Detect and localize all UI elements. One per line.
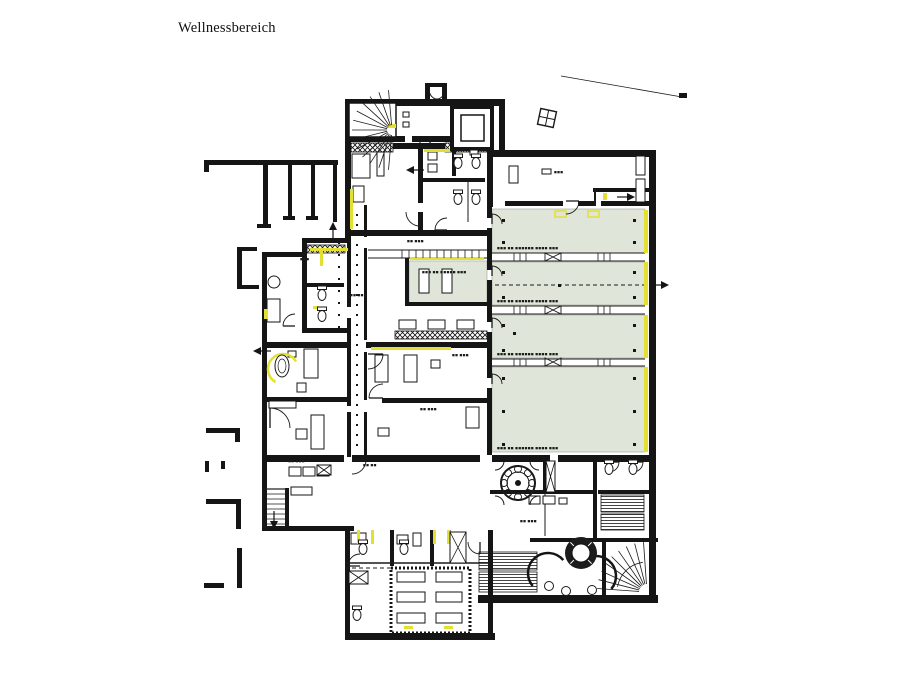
marker-dot — [633, 443, 636, 446]
wall-segment — [578, 201, 596, 206]
fixture-rect — [399, 320, 416, 329]
marker-dot — [558, 284, 561, 287]
wc-tank — [629, 460, 638, 464]
wall-segment — [221, 461, 225, 469]
wall-segment — [405, 302, 489, 306]
yellow-highlight — [310, 248, 348, 251]
marker-dot — [513, 332, 516, 335]
fixture-rect — [413, 533, 421, 546]
valve-icon — [553, 253, 561, 261]
wall-segment — [302, 238, 350, 243]
illegible-label: ■■ ■■■ — [407, 239, 424, 243]
fixture-rect — [352, 154, 370, 178]
guide-dot — [338, 254, 340, 256]
wc-icon — [318, 311, 326, 322]
illegible-label: ■■ ■■■ — [452, 353, 469, 357]
door-swing-arc — [283, 314, 295, 326]
wc-tank — [454, 190, 463, 194]
door-swing-arc — [435, 218, 447, 230]
illegible-label: ■■ ■■■ — [420, 407, 437, 411]
door-swing-arc — [406, 212, 420, 226]
yellow-highlight — [350, 189, 353, 229]
guide-dot — [356, 314, 358, 316]
illegible-label: ■■ ■■■ — [350, 293, 367, 297]
guide-dot — [356, 304, 358, 306]
wall-segment — [364, 205, 367, 237]
fixture-rect — [303, 467, 315, 476]
yellow-highlight — [404, 626, 413, 629]
circle-feature — [562, 587, 571, 596]
guide-dot — [338, 242, 340, 244]
wc-icon — [318, 290, 326, 301]
marker-dot — [502, 241, 505, 244]
guide-dot — [338, 314, 340, 316]
wall-segment — [236, 499, 241, 529]
illegible-label: ■■ ■■■ — [288, 459, 305, 463]
wall-segment — [333, 160, 337, 222]
wall-segment — [492, 455, 550, 462]
wc-tank — [400, 540, 409, 544]
fixture-rect — [304, 349, 318, 378]
fixture-rect — [297, 383, 306, 392]
marker-dot — [633, 324, 636, 327]
wall-segment — [262, 342, 350, 348]
wall-segment — [206, 428, 239, 433]
circle-feature — [588, 586, 597, 595]
fixture-rect — [466, 407, 479, 428]
petal-circle — [505, 470, 512, 477]
wall-segment — [306, 216, 318, 220]
wc-icon — [400, 544, 408, 555]
wc-icon — [353, 610, 361, 621]
wall-segment — [499, 99, 505, 157]
survey-mark-icon — [538, 109, 557, 128]
guide-dot — [356, 344, 358, 346]
fixture-rect — [397, 592, 425, 602]
wall-segment — [364, 352, 367, 400]
fixture-rect — [559, 498, 567, 504]
guide-dot — [356, 354, 358, 356]
valve-icon — [545, 306, 553, 314]
fixture-rect — [461, 115, 484, 141]
marker-dot — [633, 219, 636, 222]
wall-segment — [237, 285, 259, 289]
guide-dot — [356, 324, 358, 326]
wall-segment — [283, 216, 295, 220]
fixture-rect — [636, 179, 645, 202]
illegible-label: ■■■ ■■ ■■■■■■ ■■■■ ■■■ — [497, 352, 558, 356]
wc-icon — [472, 194, 480, 205]
wc-icon — [454, 158, 462, 169]
door-swing-arc — [270, 408, 290, 428]
guide-dot — [356, 434, 358, 436]
wc-tank — [605, 460, 614, 464]
wall-segment — [205, 461, 209, 472]
wall-segment — [352, 455, 480, 462]
stair-tread — [644, 542, 647, 584]
direction-arrow-icon — [661, 281, 669, 289]
guide-dot — [356, 384, 358, 386]
wall-segment — [649, 150, 656, 603]
marker-dot — [633, 377, 636, 380]
marker-dot — [502, 271, 505, 274]
guide-dot — [356, 224, 358, 226]
corner-arc — [495, 461, 504, 470]
wall-segment — [405, 258, 409, 304]
direction-arrow-icon — [627, 193, 635, 201]
valve-icon — [553, 306, 561, 314]
fixture-rect — [403, 122, 409, 127]
door-swing-arc — [468, 542, 480, 554]
fixture-rect — [436, 613, 462, 623]
wall-segment — [364, 412, 367, 457]
corner-arc — [495, 496, 504, 505]
guide-dot — [356, 404, 358, 406]
fixture-rect — [375, 355, 388, 382]
yellow-highlight — [603, 193, 607, 200]
guide-dot — [356, 364, 358, 366]
petal-circle — [524, 470, 531, 477]
wall-segment — [237, 247, 242, 289]
wc-tank — [359, 540, 368, 544]
yellow-highlight — [371, 347, 451, 350]
fixture-rect — [397, 572, 425, 582]
wall-segment — [393, 143, 422, 149]
corner-arc — [530, 461, 539, 470]
wall-segment — [204, 160, 209, 172]
yellow-highlight — [644, 367, 648, 452]
wall-segment — [311, 160, 315, 218]
fixture-rect — [378, 428, 389, 436]
slatted-bench — [601, 495, 644, 512]
marker-dot — [633, 241, 636, 244]
wall-segment — [302, 328, 350, 333]
tub-ellipse — [275, 355, 289, 377]
wall-segment — [418, 143, 423, 203]
floor-plan-page: Wellnessbereich ■■■ ■■ ■■■■■■ ■■■■ ■■■■■… — [0, 0, 900, 675]
wall-segment — [382, 398, 490, 403]
wall-segment — [347, 318, 351, 406]
yellow-highlight — [264, 309, 268, 319]
guide-dot — [338, 326, 340, 328]
wc-tank — [454, 154, 463, 158]
fixture-rect — [457, 320, 474, 329]
wall-segment — [345, 530, 350, 640]
fixture-rect — [269, 401, 296, 408]
yellow-highlight — [444, 626, 453, 629]
guide-dot — [356, 284, 358, 286]
fixture-rect — [509, 166, 518, 183]
guide-dot — [356, 414, 358, 416]
wall-segment — [206, 499, 241, 504]
illegible-label: ■■■ — [600, 489, 609, 493]
fixture-rect — [349, 103, 396, 137]
fixture-rect — [403, 112, 409, 117]
wall-segment — [257, 224, 271, 228]
floor-plan-drawing: ■■■ ■■ ■■■■■■ ■■■■ ■■■■■■ ■■ ■■■■■■ ■■■■… — [0, 0, 900, 675]
wc-tank — [472, 154, 481, 158]
wc-tank — [472, 190, 481, 194]
wall-segment — [530, 538, 658, 542]
circle-feature — [545, 582, 554, 591]
wc-tank — [318, 307, 327, 311]
fixture-rect — [267, 299, 280, 322]
wall-segment — [204, 583, 224, 588]
wc-tank — [353, 606, 362, 610]
fixture-rect — [311, 415, 324, 449]
guide-dot — [356, 394, 358, 396]
marker-dot — [633, 410, 636, 413]
fixture-rect — [404, 355, 417, 382]
guide-dot — [338, 302, 340, 304]
marker-dot — [633, 271, 636, 274]
green-room — [492, 367, 645, 452]
guide-dot — [356, 264, 358, 266]
wall-segment — [593, 455, 597, 540]
marker-dot — [502, 324, 505, 327]
guide-dot — [356, 424, 358, 426]
fixture-rect — [436, 592, 462, 602]
yellow-highlight — [644, 210, 648, 253]
wall-segment — [505, 201, 563, 206]
tub-ellipse — [278, 359, 286, 373]
wall-segment — [390, 530, 394, 566]
wall-segment — [487, 228, 492, 270]
guide-dot — [356, 244, 358, 246]
yellow-highlight — [320, 251, 323, 266]
yellow-highlight — [433, 530, 436, 544]
partition-line — [561, 76, 682, 97]
guide-dot — [356, 234, 358, 236]
yellow-highlight — [644, 315, 648, 358]
wall-segment — [263, 160, 268, 226]
marker-dot — [502, 219, 505, 222]
marker-dot — [502, 410, 505, 413]
fixture-rect — [296, 429, 307, 439]
wall-segment — [204, 160, 338, 165]
fixture-rect — [679, 93, 687, 98]
yellow-highlight — [410, 257, 484, 260]
illegible-label: ■■■ ■■ ■■■■■■ ■■■■ ■■■ — [497, 299, 558, 303]
guide-dot — [356, 254, 358, 256]
wc-icon — [359, 544, 367, 555]
fixture-rect — [428, 152, 437, 160]
wc-tank — [318, 286, 327, 290]
wall-segment — [237, 247, 257, 251]
fixture-rect — [291, 487, 312, 495]
door-swing-arc — [369, 384, 383, 398]
wall-segment — [237, 548, 242, 588]
marker-dot — [633, 296, 636, 299]
fixture-rect — [289, 467, 301, 476]
wall-segment — [423, 143, 445, 149]
fixture-rect — [428, 320, 445, 329]
yellow-highlight — [424, 149, 450, 152]
wall-segment — [487, 207, 492, 218]
wall-segment — [490, 150, 656, 157]
wall-segment — [487, 332, 492, 378]
fixture-rect — [353, 186, 364, 202]
illegible-label: ■■■ ■■ ■■■■■ ■■■ — [422, 270, 467, 274]
slatted-bench — [601, 514, 644, 530]
guide-dot — [338, 278, 340, 280]
wc-icon — [472, 158, 480, 169]
wall-segment — [420, 230, 490, 236]
circle-dot — [515, 480, 521, 486]
direction-arrow-icon — [253, 347, 261, 355]
guide-dot — [356, 374, 358, 376]
illegible-label: ■■ ■■ — [363, 463, 377, 467]
direction-arrow-icon — [329, 222, 337, 230]
valve-icon — [545, 253, 553, 261]
wall-segment — [487, 280, 492, 322]
yellow-highlight — [388, 124, 396, 128]
illegible-label: ■■■ ■■ ■■■■■■ ■■■■ ■■■ — [497, 446, 558, 450]
guide-dot — [338, 290, 340, 292]
wall-segment — [488, 530, 493, 637]
wc-icon — [454, 194, 462, 205]
fixture-rect — [397, 613, 425, 623]
illegible-label: ■■■ — [554, 170, 563, 174]
wall-segment — [235, 428, 240, 442]
guide-dot — [356, 334, 358, 336]
yellow-arc — [268, 354, 296, 382]
marker-dot — [633, 349, 636, 352]
wc-icon — [629, 464, 637, 475]
circle-feature — [268, 276, 280, 288]
fixture-rect — [543, 496, 555, 504]
wall-segment — [347, 412, 351, 457]
whirlpool-inner — [572, 544, 590, 562]
fixture-rect — [428, 164, 437, 172]
wall-segment — [288, 160, 292, 218]
wall-segment — [423, 178, 485, 182]
guide-dot — [338, 266, 340, 268]
yellow-highlight — [644, 262, 648, 305]
guide-dot — [356, 214, 358, 216]
illegible-label: ■■■ — [300, 257, 309, 261]
marker-dot — [502, 377, 505, 380]
fixture-rect — [431, 360, 440, 368]
illegible-label: ■■■ ■■ ■■■■■■ ■■■■ ■■■ — [497, 246, 558, 250]
illegible-label: ■■ ■■■ — [520, 519, 537, 523]
direction-arrow-icon — [406, 166, 414, 174]
wall-segment — [601, 201, 656, 206]
guide-dot — [356, 274, 358, 276]
wall-segment — [478, 595, 658, 603]
yellow-highlight — [371, 530, 374, 544]
wc-icon — [605, 464, 613, 475]
hatched-wall — [395, 331, 487, 339]
fixture-rect — [542, 169, 551, 174]
fixture-rect — [436, 572, 462, 582]
wall-segment — [262, 252, 267, 457]
guide-dot — [356, 444, 358, 446]
fixture-rect — [636, 156, 645, 175]
